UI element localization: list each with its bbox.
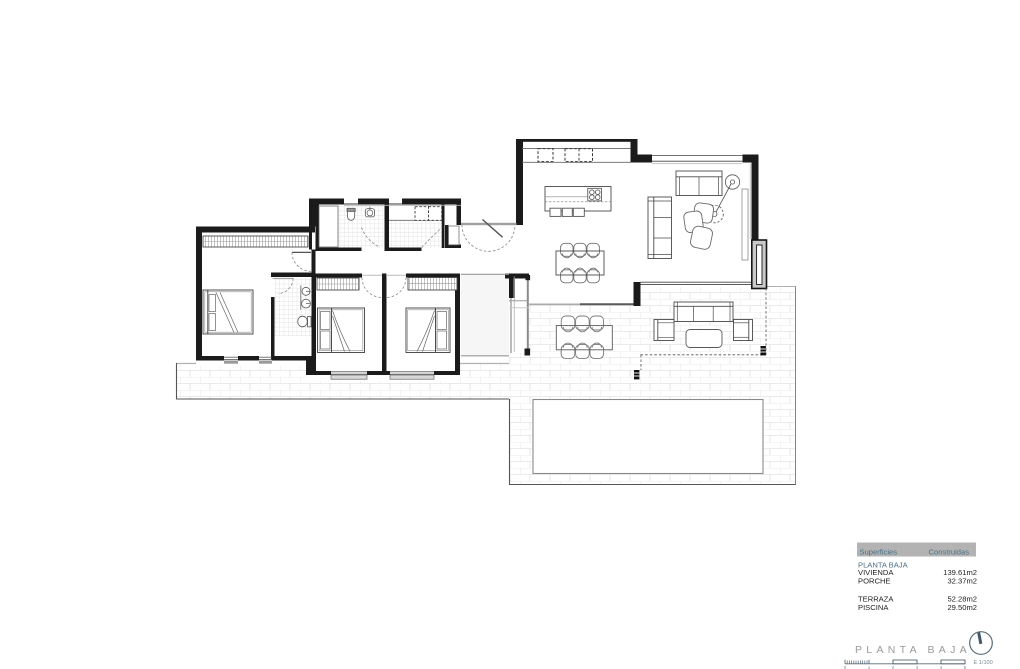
svg-text:4: 4 bbox=[940, 665, 943, 669]
svg-text:29.50m2: 29.50m2 bbox=[947, 603, 977, 612]
svg-text:5: 5 bbox=[964, 665, 967, 669]
svg-text:Superficies: Superficies bbox=[860, 547, 898, 556]
svg-text:1: 1 bbox=[868, 665, 871, 669]
svg-text:Construidas: Construidas bbox=[929, 547, 970, 556]
svg-text:E 1/100: E 1/100 bbox=[974, 660, 993, 666]
svg-text:2: 2 bbox=[892, 665, 895, 669]
svg-text:PLANTA BAJA: PLANTA BAJA bbox=[855, 644, 971, 656]
svg-text:32.37m2: 32.37m2 bbox=[947, 576, 977, 585]
svg-text:PISCINA: PISCINA bbox=[858, 603, 889, 612]
svg-text:PORCHE: PORCHE bbox=[858, 576, 891, 585]
svg-text:0: 0 bbox=[844, 665, 847, 669]
svg-text:3: 3 bbox=[916, 665, 919, 669]
